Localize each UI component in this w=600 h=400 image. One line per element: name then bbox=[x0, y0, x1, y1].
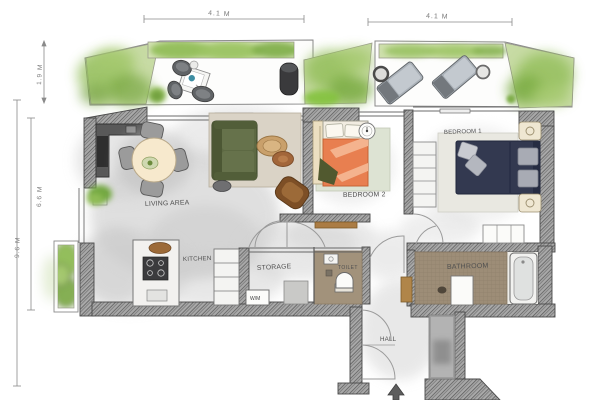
svg-text:HALL: HALL bbox=[380, 336, 397, 343]
svg-text:6.6 M: 6.6 M bbox=[36, 186, 44, 207]
svg-text:TOILET: TOILET bbox=[338, 265, 358, 271]
svg-text:KITCHEN: KITCHEN bbox=[183, 255, 212, 263]
svg-text:4.1 M: 4.1 M bbox=[426, 13, 449, 21]
svg-text:1.9 M: 1.9 M bbox=[36, 64, 44, 86]
svg-text:9.6 M: 9.6 M bbox=[14, 237, 22, 258]
svg-text:4.1 M: 4.1 M bbox=[208, 10, 231, 18]
svg-text:W/M: W/M bbox=[250, 296, 260, 302]
svg-text:BEDROOM 2: BEDROOM 2 bbox=[343, 191, 386, 199]
svg-text:BATHROOM: BATHROOM bbox=[447, 263, 489, 271]
